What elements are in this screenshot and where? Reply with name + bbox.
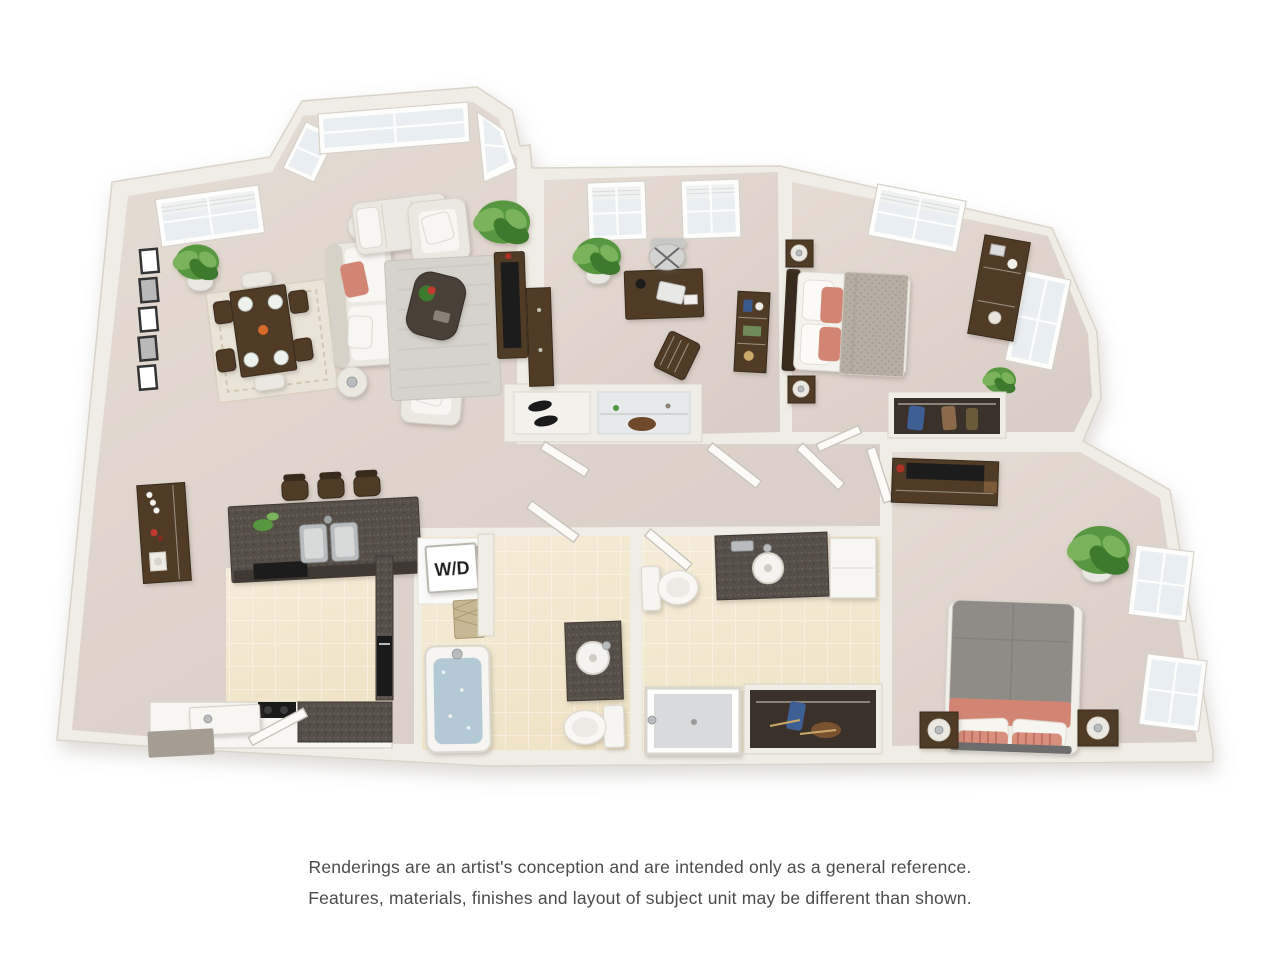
bedroom2-nightstand-east (1078, 710, 1118, 746)
kitchen-pantry-cabinet (137, 482, 192, 583)
side-table-lamp-south (337, 367, 367, 397)
kitchen-tile-floor (226, 568, 392, 712)
hall-closet-block (504, 384, 702, 442)
washer-dryer-label: W/D (434, 558, 470, 580)
office-cabinet (526, 288, 553, 387)
bedroom2-bed (944, 600, 1083, 755)
office-desk-chair (649, 238, 686, 270)
washer-dryer-unit: W/D (425, 543, 485, 593)
bedroom2-window-2 (1139, 654, 1207, 732)
office-window-1 (587, 181, 647, 241)
armchair-north (407, 197, 471, 265)
bedroom1-nightstand-north (786, 240, 813, 267)
office-bookshelf (734, 291, 770, 373)
bedroom1-bed (781, 269, 910, 377)
bathroom2-vanity (715, 532, 829, 600)
bathroom1-vanity (565, 621, 624, 701)
bedroom1-closet (888, 392, 1006, 438)
shower (646, 688, 740, 754)
bathroom2-closet (744, 684, 882, 754)
floor-plan-rendering: W/D (0, 0, 1280, 960)
shoe-closet (514, 392, 590, 434)
disclaimer: Renderings are an artist's conception an… (0, 852, 1280, 914)
bathroom2-linen-cabinet (830, 538, 876, 598)
bedroom2-media-console (891, 458, 998, 506)
hall-cabinet-niche (598, 392, 690, 434)
floor-plan-page: W/D (0, 0, 1280, 960)
office-window-2 (681, 179, 741, 239)
bar-stools (281, 469, 380, 500)
disclaimer-line-1: Renderings are an artist's conception an… (0, 852, 1280, 883)
bedroom2-window-1 (1128, 545, 1194, 622)
tv-console (494, 252, 528, 359)
bedroom1-nightstand-south (788, 376, 815, 403)
disclaimer-line-2: Features, materials, finishes and layout… (0, 883, 1280, 914)
entry-doormat (147, 728, 214, 757)
bathtub (425, 645, 491, 752)
office-desk (624, 269, 704, 320)
laundry-partition-wall (478, 534, 494, 636)
bedroom2-nightstand-west (920, 712, 958, 748)
